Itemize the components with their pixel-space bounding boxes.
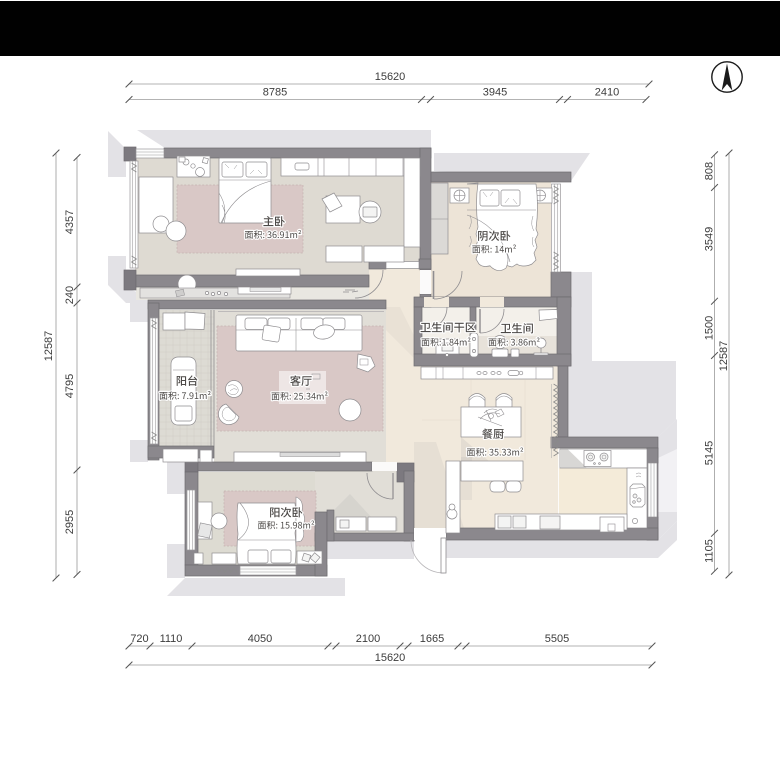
svg-text:808: 808 (704, 162, 716, 180)
svg-text:1105: 1105 (704, 539, 716, 563)
svg-text:2100: 2100 (356, 633, 380, 645)
svg-text:2410: 2410 (595, 87, 619, 99)
svg-text:2955: 2955 (64, 510, 76, 534)
svg-text:4357: 4357 (64, 210, 76, 234)
svg-text:1110: 1110 (160, 633, 183, 645)
svg-text:12587: 12587 (43, 331, 55, 362)
svg-text:1665: 1665 (420, 633, 444, 645)
svg-text:15620: 15620 (375, 71, 406, 83)
svg-text:12587: 12587 (718, 341, 730, 372)
svg-text:5145: 5145 (704, 441, 716, 465)
svg-text:3549: 3549 (704, 227, 716, 251)
svg-text:3945: 3945 (483, 87, 507, 99)
svg-text:4795: 4795 (64, 374, 76, 398)
svg-text:1500: 1500 (704, 316, 716, 340)
svg-text:4050: 4050 (248, 633, 272, 645)
svg-text:8785: 8785 (263, 87, 287, 99)
svg-text:5505: 5505 (545, 633, 569, 645)
svg-text:720: 720 (130, 633, 148, 645)
svg-text:240: 240 (64, 286, 76, 304)
svg-text:15620: 15620 (375, 652, 406, 664)
